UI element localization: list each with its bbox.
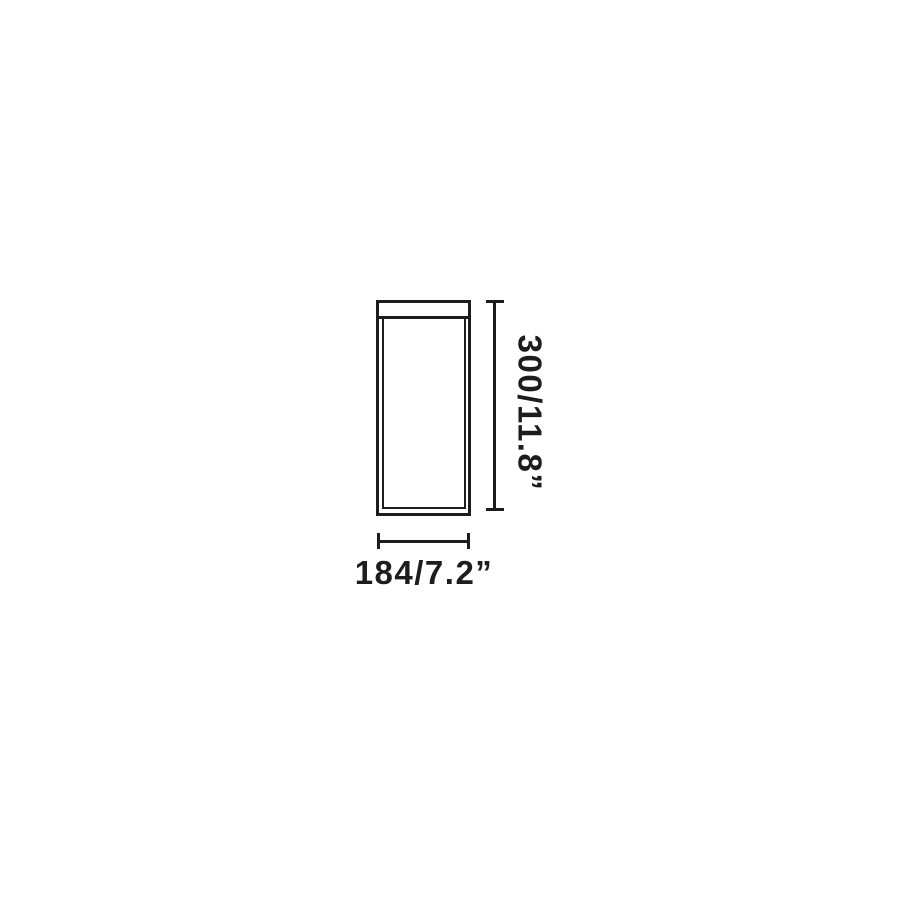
width-dimension-left-tick bbox=[377, 533, 380, 549]
width-dimension-line bbox=[378, 540, 470, 543]
fixture-inner-panel bbox=[382, 316, 466, 509]
width-dimension-label: 184/7.2” bbox=[355, 556, 494, 589]
dimension-diagram-canvas: 300/11.8” 184/7.2” bbox=[0, 0, 900, 900]
height-dimension-label: 300/11.8” bbox=[514, 335, 547, 492]
width-dimension-right-tick bbox=[467, 533, 470, 549]
height-dimension-top-tick bbox=[486, 300, 504, 303]
height-dimension-line bbox=[493, 301, 496, 510]
height-dimension-bottom-tick bbox=[486, 508, 504, 511]
